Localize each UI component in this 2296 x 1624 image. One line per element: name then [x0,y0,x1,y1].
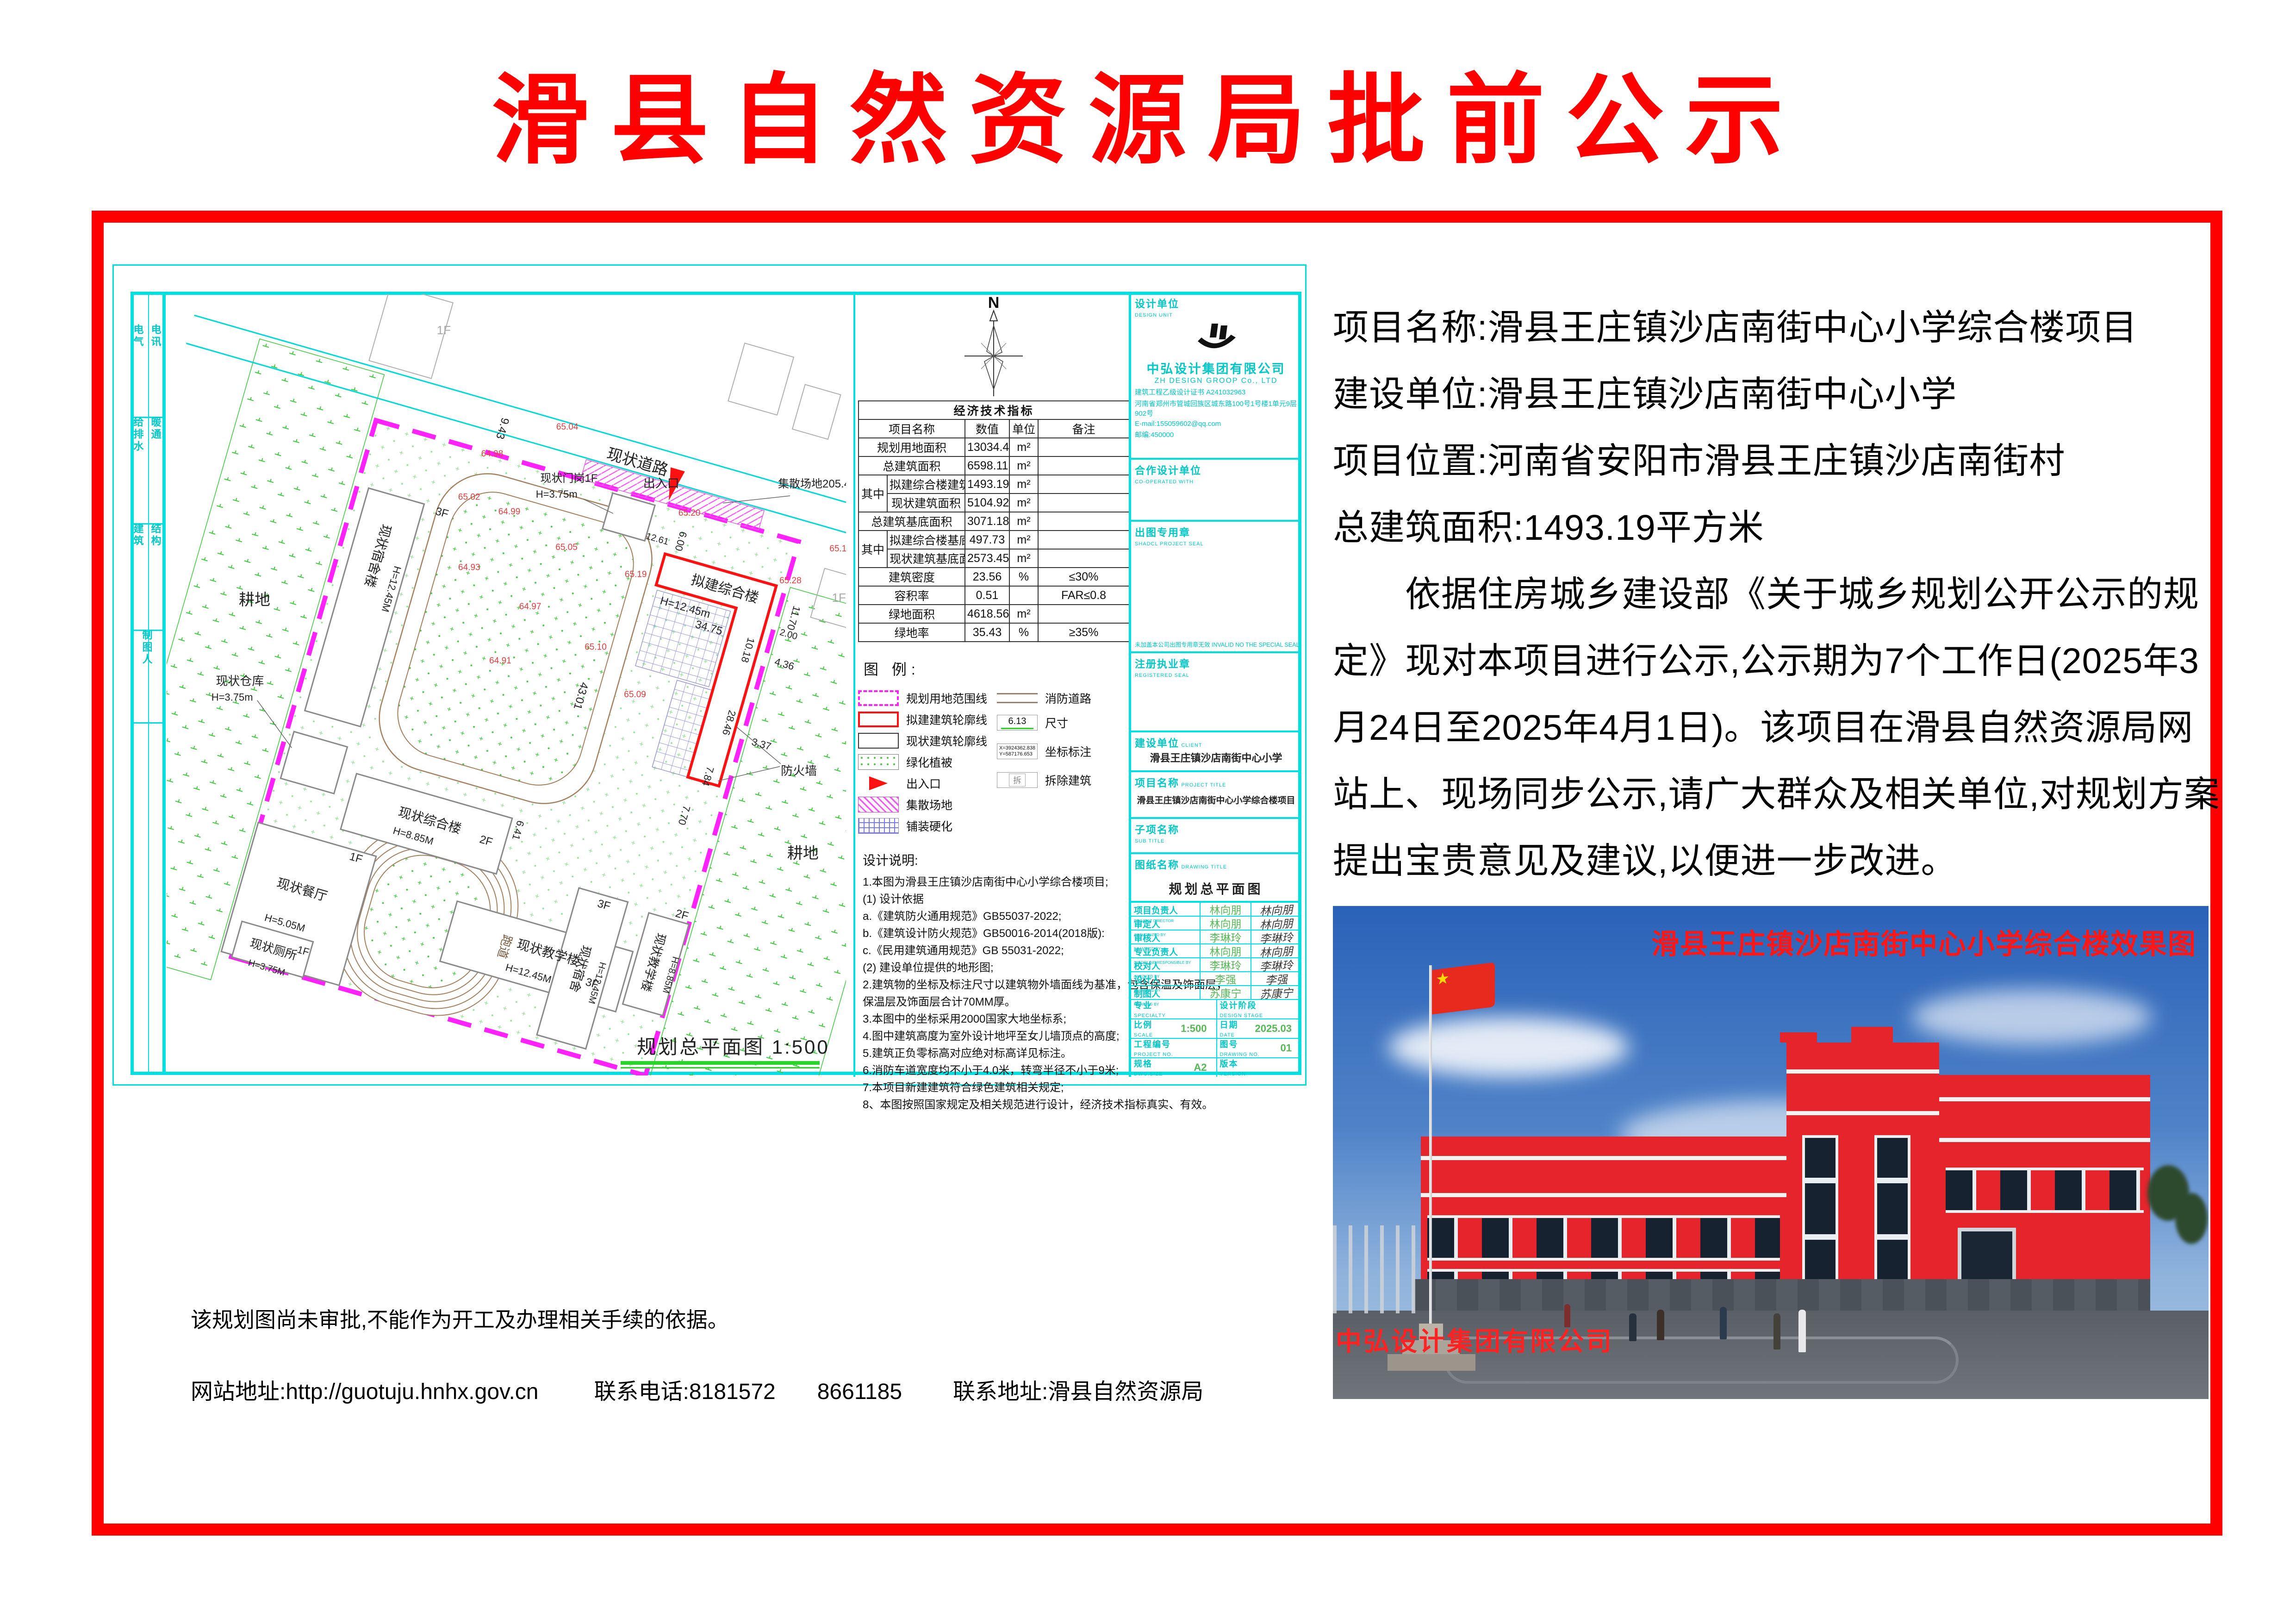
neighbour-building [792,385,840,439]
note-line: 5.建筑正负零标高对应绝对标高详见标注。 [863,1045,1129,1062]
existing-outline-swatch-icon [858,733,899,749]
elevation: 64.97 [519,602,541,612]
farmland-label-left: 耕地 [239,591,270,609]
info-line-notice-1: 依据住房城乡建设部《关于城乡规划公开公示的规 [1333,561,2210,628]
row-name: 绿地面积 [859,605,965,623]
row-note [1038,549,1129,568]
seal-section: 出图专用章 SHADCL PROJECT SEAL 未加盖本公司出图专用章无效 … [1131,522,1301,654]
project-title-section: 项目名称 PROJECT TITLE 滑县王庄镇沙店南街中心小学综合楼项目 [1131,772,1301,818]
note-line: (2) 建设单位提供的地形图; [863,959,1129,976]
project-info-panel: 项目名称:滑县王庄镇沙店南街中心小学综合楼项目 建设单位:滑县王庄镇沙店南街中心… [1333,294,2210,894]
note-line: 8、本图按照国家规定及相关规范进行设计，经济技术指标真实、有效。 [863,1096,1129,1113]
specialty-label: 专业SPECIALTY [1134,999,1166,1019]
legend-label: 消防道路 [1045,690,1091,706]
proposed-outline-swatch-icon [858,712,899,727]
drawing-no-value: 01 [1281,1042,1292,1054]
date-value: 2025.03 [1255,1023,1292,1035]
logo-bar1 [1210,324,1218,337]
scale-cn: 比例 [1134,1020,1152,1030]
role-cn: 审核人 [1134,934,1160,943]
legend-item: 绿化植被 [858,751,997,773]
version-en: VERSION [1220,1071,1246,1077]
personnel-name: 林向朋 [1201,944,1251,957]
date-label: 日期DATE [1220,1018,1238,1039]
date-cn: 日期 [1220,1020,1238,1030]
date-en: DATE [1220,1032,1235,1038]
version-cn: 版本 [1220,1059,1238,1068]
row-note: ≥35% [1038,623,1129,642]
legend: 图 例: 规划用地范围线 拟建建筑轮廓线 现状建筑轮廓线 [858,658,1129,837]
design-unit-label: 设计单位 [1135,298,1179,310]
footer-address: 联系地址:滑县自然资源局 [953,1380,1203,1404]
campus-fence [1333,1225,1421,1313]
size-en: DWG.SIZE [1134,1071,1163,1077]
row-name: 拟建综合楼基底面积 [887,531,965,549]
size-label: 规格DWG.SIZE [1134,1057,1163,1078]
drawing-title-value: 规划总平面图 [1135,879,1297,898]
legend-label: 现状建筑轮廓线 [906,732,987,749]
gatehouse-height: H=3.75m [536,488,578,500]
company-email: E-mail:155059602@qq.com [1135,420,1297,428]
economic-indicator-table: 经济技术指标 项目名称 数值 单位 备注 规划用地面积 13034.49 m² … [858,400,1130,642]
note-line: (1) 设计依据 [863,891,1129,908]
legend-label: 铺装硬化 [906,818,952,834]
sub-title-label: 子项名称 [1135,824,1179,836]
neighbour-building [728,343,794,415]
site-plan-sheet: 电气 电讯 给排水 暖通 建筑 结构 制图人 [112,264,1307,1086]
stage-cell: 设计阶段DESIGN STAGE [1216,1000,1301,1018]
project-no-label: 工程编号PROJECT NO. [1134,1038,1173,1058]
row-note [1038,493,1129,512]
legend-label: 坐标标注 [1045,743,1091,760]
table-row: 其中 拟建综合楼基底面积 497.73 m² [859,531,1129,549]
facade-band [1786,1069,1939,1074]
personnel-role: 审定人AUTHORIZED BY [1131,917,1201,930]
row-value: 1493.19 [965,475,1009,493]
legend-right-column: 消防道路 6.13 尺寸 X=3924362.838 [997,687,1129,837]
company-cert: 建筑工程乙级设计证书 A241032963 [1135,387,1297,397]
gatehouse-label: 现状门岗1F [540,472,597,485]
title-block: 设计单位 DESIGN UNIT 中弘设计集团有限公司 ZH DESIGN GR… [1129,293,1301,1077]
legend-left-column: 规划用地范围线 拟建建筑轮廓线 现状建筑轮廓线 绿化植被 [858,687,997,837]
row-note [1038,438,1129,456]
elevation: 65.09 [624,690,646,700]
table-title: 经济技术指标 [859,401,1129,419]
farmland-label-southeast: 耕地 [718,1085,750,1087]
table-row: 绿地面积 4618.56 m² [859,605,1129,623]
personnel-name: 林向朋 [1201,903,1251,916]
projectno-drawingno-row: 工程编号PROJECT NO. 图号DRAWING NO. 01 [1131,1039,1301,1058]
elevation: 64.93 [458,563,480,573]
registered-seal-section: 注册执业章 REGISTERED SEAL [1131,653,1301,732]
coop-label: 合作设计单位 [1135,465,1201,476]
tower-window-column [1874,1135,1910,1293]
legend-item: 集散场地 [858,794,997,815]
cloud [1911,989,2152,1045]
greenery-swatch-icon [858,754,899,770]
project-title-value: 滑县王庄镇沙店南街中心小学综合楼项目 [1135,793,1297,806]
coop-section: 合作设计单位 CO-OPERATED WITH [1131,460,1301,521]
building-plinth [1414,1279,2150,1312]
registered-seal-label-en: REGISTERED SEAL [1135,673,1189,678]
building-right-wing [1939,1075,2150,1312]
row-name: 规划用地面积 [859,438,965,456]
legend-item: 铺装硬化 [858,815,997,837]
personnel-signature: 苏康宁 [1251,985,1301,1000]
footer-phone: 联系电话:8181572 [594,1380,776,1404]
company-address: 河南省郑州市管城回族区城东路100号1号楼1单元9层902号 [1135,399,1297,418]
facade-band [1421,1193,1786,1197]
row-name: 容积率 [859,586,965,605]
footer-phone2: 8661185 [817,1380,902,1404]
row-unit: m² [1009,549,1038,568]
role-cn: 专业负责人 [1134,948,1178,957]
row-value: 13034.49 [965,438,1009,456]
row-unit: m² [1009,475,1038,493]
drawing-title-label: 图纸名称 [1135,859,1179,871]
boundary-swatch-icon [858,690,899,706]
drawing-no-en: DRAWING NO. [1220,1052,1260,1057]
role-cn: 审定人 [1134,920,1160,930]
note-line: 3.本图中的坐标采用2000国家大地坐标系; [863,1011,1129,1028]
elevation: 65.10 [585,643,607,652]
entrance-label: 出入口 [643,476,679,490]
size-cn: 规格 [1134,1059,1152,1068]
table-row: 现状建筑基底面积 2573.45 m² [859,549,1129,568]
company-zip: 邮编:450000 [1135,430,1297,439]
info-line-notice-5: 提出宝贵意见及建议,以便进一步改进。 [1333,828,2210,894]
client-label-en: CLIENT [1181,743,1202,748]
row-value: 5104.92 [965,493,1009,512]
legend-grid: 规划用地范围线 拟建建筑轮廓线 现状建筑轮廓线 绿化植被 [858,687,1129,837]
row-value: 6598.11 [965,456,1009,475]
legend-item: 拟建建筑轮廓线 [858,709,997,730]
personnel-role: 校对人CHECKED BY [1131,958,1201,971]
client-value: 滑县王庄镇沙店南街中心小学 [1135,750,1297,765]
drawing-no-cn: 图号 [1220,1040,1238,1049]
sheet-middle-column: N 经济技术指标 项目名称 数值 单位 备注 [858,293,1129,1077]
gathering-swatch-icon [858,797,899,812]
facade-band [1939,1097,2150,1101]
row-unit: m² [1009,512,1038,531]
legend-label: 尺寸 [1045,714,1068,731]
row-note: FAR≤0.8 [1038,586,1129,605]
version-label: 版本VERSION [1220,1057,1246,1078]
coordinate-y: Y=587176.653 [999,751,1033,757]
table-row: 总建筑基底面积 3071.18 m² [859,512,1129,531]
table-row: 建筑密度 23.56 % ≤30% [859,568,1129,586]
table-row: 规划用地面积 13034.49 m² [859,438,1129,456]
neighbour-floors: 1F [832,591,846,605]
legend-title: 图 例: [864,658,1129,679]
specialty-en: SPECIALTY [1134,1013,1166,1018]
scale-value: 1:500 [1181,1023,1207,1035]
date-cell: 日期DATE 2025.03 [1216,1019,1301,1038]
table-row: 容积率 0.51 FAR≤0.8 [859,586,1129,605]
note-line: 6.消防车道宽度均不小于4.0米，转弯半径不小于9米; [863,1062,1129,1079]
row-unit: % [1009,568,1038,586]
version-cell: 版本VERSION [1216,1058,1301,1077]
cloud [1388,1017,1629,1077]
row-value: 23.56 [965,568,1009,586]
footer-website: 网站地址:http://guotuju.hnhx.gov.cn [191,1380,539,1404]
scale-date-row: 比例SCALE 1:500 日期DATE 2025.03 [1131,1019,1301,1039]
elevation: 65.28 [779,576,802,586]
coordinate-x: X=3924362.838 [999,745,1035,751]
north-compass-svg: N [959,297,1028,401]
personnel-name: 李强 [1201,972,1251,985]
row-unit: m² [1009,456,1038,475]
footer-disclaimer: 该规划图尚未审批,不能作为开工及办理相关手续的依据。 [191,1303,729,1334]
row-name: 总建筑面积 [859,456,965,475]
fire-road-swatch-icon [997,693,1038,703]
personnel-name: 苏康宁 [1201,986,1251,999]
rendering-watermark: 中弘设计集团有限公司 [1336,1321,1613,1358]
role-cn: 校对人 [1134,962,1160,971]
personnel-name: 林向朋 [1201,917,1251,930]
person-silhouette [1773,1313,1780,1349]
legend-label: 拟建建筑轮廓线 [906,711,987,728]
legend-item: 出入口 [858,773,997,794]
col-header-note: 备注 [1038,419,1129,438]
info-line-notice-4: 站上、现场同步公示,请广大群众及相关单位,对规划方案 [1333,761,2210,828]
row-value: 4618.56 [965,605,1009,623]
scale-en: SCALE [1134,1032,1153,1038]
flag-star-icon: ★ [1436,969,1450,989]
legend-label: 绿化植被 [906,754,952,770]
row-name: 现状建筑基底面积 [887,549,965,568]
note-line: b.《建筑设计防火规范》GB50016-2014(2018版): [863,925,1129,942]
coop-label-en: CO-OPERATED WITH [1135,479,1194,485]
row-name: 拟建综合楼建筑面积 [887,475,965,493]
facade-band [1421,1156,1786,1160]
company-logo-svg [1194,322,1238,358]
personnel-role: 设计人DESIGNED BY [1131,972,1201,985]
rendering-caption: 滑县王庄镇沙店南街中心小学综合楼效果图 [1651,922,2196,962]
table-row: 现状建筑面积 5104.92 m² [859,493,1129,512]
table-row: 其中 拟建综合楼建筑面积 1493.19 m² [859,475,1129,493]
parapet-step [1851,1027,1893,1043]
info-line-notice-2: 定》现对本项目进行公示,公示期为7个工作日(2025年3 [1333,628,2210,694]
seal-note: 未加盖本公司出图专用章无效 INVALID NO THE SPECIAL SEA… [1135,640,1299,649]
elevation: 64.99 [498,507,521,517]
personnel-role: 项目负责人PROJECT DIRECTOR [1131,903,1201,916]
legend-label: 拆除建筑 [1045,772,1091,788]
building-tower [1786,1043,1939,1312]
note-line: 7.本项目新建建筑符合绿色建筑相关规定; [863,1079,1129,1096]
personnel-row: 制图人DRAWING BY 苏康宁 苏康宁 [1131,986,1301,1000]
row-note: ≤30% [1038,568,1129,586]
design-notes-title: 设计说明: [863,850,1129,869]
info-line-client: 建设单位:滑县王庄镇沙店南街中心小学 [1333,361,2210,428]
elevation: 65.04 [556,422,579,432]
seal-label-en: SHADCL PROJECT SEAL [1135,541,1204,547]
dimension-swatch-icon: 6.13 [997,715,1038,731]
warehouse-height: H=3.75m [212,692,253,703]
row-note [1038,475,1129,493]
row-value: 35.43 [965,623,1009,642]
elevation: 65.20 [678,508,701,518]
dimension-example: 6.13 [1008,716,1027,727]
legend-item: 拆 拆除建筑 [997,766,1129,794]
seal-label: 出图专用章 [1135,527,1190,538]
plan-title-underline-2 [621,1067,820,1068]
facade-band [1939,1138,2150,1142]
scale-label: 比例SCALE [1134,1018,1153,1039]
project-no-en: PROJECT NO. [1134,1052,1173,1057]
entrance-arrow-swatch-icon [858,775,899,791]
role-cn: 设计人 [1134,975,1160,985]
row-name: 现状建筑面积 [887,493,965,512]
elevation: 64.98 [481,449,504,459]
client-label: 建设单位 [1135,737,1179,749]
project-title-label-en: PROJECT TITLE [1181,782,1226,788]
person-silhouette [1720,1307,1727,1339]
elevation: 65.17 [829,544,852,554]
north-compass: N [858,293,1129,400]
role-cn: 制图人 [1134,989,1160,999]
window-row [1427,1215,1780,1261]
table-row: 总建筑面积 6598.11 m² [859,456,1129,475]
size-value: A2 [1194,1062,1207,1074]
note-line: c.《民用建筑通用规范》GB 55031-2022; [863,942,1129,959]
person-silhouette [1798,1310,1806,1352]
note-line: 4.图中建筑高度为室外设计地坪至女儿墙顶点的高度; [863,1028,1129,1045]
legend-label: 出入口 [906,775,941,792]
elevation: 65.02 [458,493,480,502]
role-cn: 项目负责人 [1134,906,1178,916]
dim-9-43: 9.43 [493,416,511,440]
design-notes: 设计说明: 1.本图为滑县王庄镇沙店南街中心小学综合楼项目; (1) 设计依据 … [863,850,1129,1113]
legend-item: 消防道路 [997,687,1129,709]
row-value: 497.73 [965,531,1009,549]
note-line: 2.建筑物的坐标及标注尺寸以建筑物外墙面线为基准，包含保温及饰面层， [863,976,1129,993]
window-row [1946,1168,2144,1213]
facade-band [1786,1111,1939,1115]
stage-en: DESIGN STAGE [1220,1013,1263,1018]
info-line-area: 总建筑面积:1493.19平方米 [1333,494,2210,561]
logo-bar2 [1219,325,1227,339]
company-logo [1135,322,1297,358]
project-no-cn: 工程编号 [1134,1040,1171,1049]
person-silhouette [1629,1313,1636,1341]
flag-pole [1429,965,1432,1332]
plan-title: 规划总平面图 1:500 [637,1036,830,1058]
row-value: 3071.18 [965,512,1009,531]
tower-window-column [1802,1135,1838,1293]
legend-item: 现状建筑轮廓线 [858,730,997,751]
row-note [1038,456,1129,475]
notice-poster: 滑县自然资源局批前公示 电气 电讯 给排水 暖通 建筑 结构 制图人 [0,0,2296,1624]
project-no-cell: 工程编号PROJECT NO. [1131,1039,1216,1057]
personnel-role: 审核人EXAMINED BY [1131,931,1201,943]
info-line-notice-3: 月24日至2025年4月1日)。该项目在滑县自然资源局网 [1333,694,2210,761]
coordinate-swatch-icon: X=3924362.838 Y=587176.653 [997,743,1038,759]
personnel-role: 制图人DRAWING BY [1131,986,1201,999]
personnel-role: 专业负责人DISCIPLINE RESPONSIBLE BY [1131,944,1201,957]
project-title-label: 项目名称 [1135,777,1179,789]
plan-title-underline-1 [621,1061,820,1065]
scale-cell: 比例SCALE 1:500 [1131,1019,1216,1038]
info-line-location: 项目位置:河南省安阳市滑县王庄镇沙店南街村 [1333,428,2210,494]
demolish-swatch-icon: 拆 [997,772,1038,788]
legend-label: 规划用地范围线 [906,690,987,706]
design-unit-label-en: DESIGN UNIT [1135,312,1173,318]
legend-item: 6.13 尺寸 [997,709,1129,737]
gathering-label: 集散场地205.40m² [778,478,869,490]
stage-label: 设计阶段DESIGN STAGE [1220,999,1263,1019]
sub-title-label-en: SUB TITLE [1135,838,1164,844]
row-unit: m² [1009,531,1038,549]
row-unit: m² [1009,605,1038,623]
drawing-title-label-en: DRAWING TITLE [1181,864,1227,870]
warehouse-label: 现状仓库 [216,674,264,688]
demolish-char: 拆 [1009,774,1026,787]
row-group: 其中 [859,475,887,512]
tree [2175,1193,2208,1244]
neighbour-floors: 1F [437,323,451,337]
row-unit: m² [1009,493,1038,512]
row-group: 其中 [859,531,887,568]
drawing-title-section: 图纸名称 DRAWING TITLE 规划总平面图 [1131,854,1301,903]
row-name: 绿地率 [859,623,965,642]
info-line-project-name: 项目名称:滑县王庄镇沙店南街中心小学综合楼项目 [1333,294,2210,361]
footer-contact-row: 网站地址:http://guotuju.hnhx.gov.cn联系电话:8181… [191,1373,1203,1405]
dimension-line [1001,728,1033,729]
col-header-value: 数值 [965,419,1009,438]
parapet-step [1780,1032,1817,1043]
china-flag: ★ [1432,962,1495,1015]
size-cell: 规格DWG.SIZE A2 [1131,1058,1216,1077]
drawing-no-cell: 图号DRAWING NO. 01 [1216,1039,1301,1057]
registered-seal-label: 注册执业章 [1135,658,1190,670]
page-title: 滑县自然资源局批前公示 [0,41,2296,183]
row-unit [1009,586,1038,605]
legend-item: 规划用地范围线 [858,687,997,709]
row-unit: % [1009,623,1038,642]
specialty-stage-row: 专业SPECIALTY 设计阶段DESIGN STAGE [1131,1000,1301,1019]
company-name: 中弘设计集团有限公司 [1135,359,1297,377]
legend-label: 集散场地 [906,796,952,813]
client-section: 建设单位 CLIENT 滑县王庄镇沙店南街中心小学 [1131,732,1301,772]
legend-item: X=3924362.838 Y=587176.653 坐标标注 [997,737,1129,766]
row-value: 0.51 [965,586,1009,605]
note-line: a.《建筑防火通用规范》GB55037-2022; [863,908,1129,925]
paving-swatch-icon [858,818,899,834]
compass-arrowhead [990,311,997,321]
farmland-label-right: 耕地 [787,845,819,862]
building-rendering: ★ 滑县王庄镇沙店南街中心小学综合楼效果图 中弘设计集团有限公司 [1333,906,2209,1399]
note-line: 1.本图为滑县王庄镇沙店南街中心小学综合楼项目; [863,874,1129,891]
row-name: 总建筑基底面积 [859,512,965,531]
row-note [1038,605,1129,623]
stage-cn: 设计阶段 [1220,1001,1257,1010]
row-name: 建筑密度 [859,568,965,586]
row-note [1038,531,1129,549]
personnel-name: 李琳玲 [1201,931,1251,943]
row-note [1038,512,1129,531]
col-header-unit: 单位 [1009,419,1038,438]
personnel-name: 李琳玲 [1201,958,1251,971]
sub-title-section: 子项名称 SUB TITLE [1131,819,1301,855]
company-name-en: ZH DESIGN GROOP Co., LTD [1135,377,1297,385]
person-silhouette [1657,1310,1664,1340]
row-unit: m² [1009,438,1038,456]
elevation: 64.91 [489,656,511,666]
row-value: 2573.45 [965,549,1009,568]
specialty-cn: 专业 [1134,1001,1152,1010]
table-row: 绿地率 35.43 % ≥35% [859,623,1129,642]
